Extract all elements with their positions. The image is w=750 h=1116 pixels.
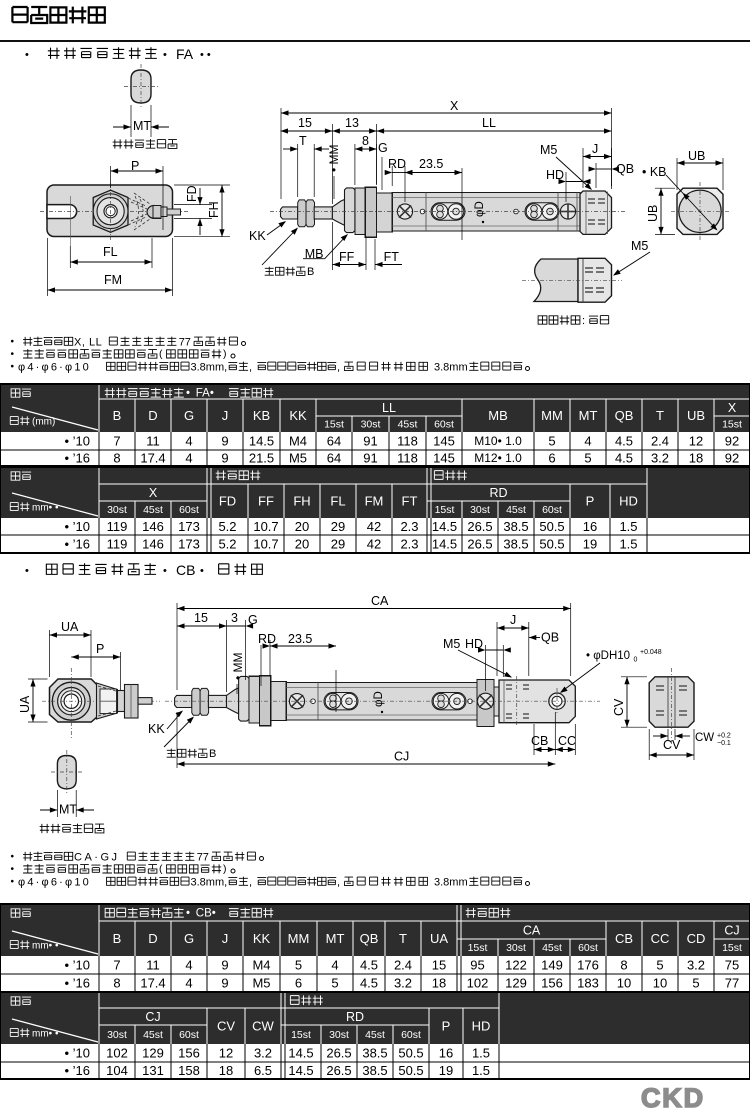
svg-text:42: 42 — [367, 537, 381, 552]
svg-text:15st: 15st — [722, 942, 742, 954]
svg-text:M5: M5 — [289, 451, 307, 466]
svg-text:15st: 15st — [722, 419, 742, 431]
svg-text:UB: UB — [646, 205, 660, 222]
svg-text:158: 158 — [178, 1063, 200, 1078]
svg-text:4: 4 — [185, 434, 192, 449]
svg-text:G: G — [378, 141, 388, 155]
svg-text:•: • — [11, 349, 15, 360]
svg-text:30st: 30st — [470, 504, 490, 516]
svg-text:2.3: 2.3 — [400, 537, 418, 552]
svg-text:φ4·φ6·φ10: φ4·φ6·φ10 — [18, 877, 91, 889]
svg-text:146: 146 — [142, 519, 164, 534]
svg-text:5: 5 — [548, 434, 555, 449]
svg-text:2.4: 2.4 — [651, 434, 669, 449]
svg-text:13: 13 — [345, 116, 359, 130]
svg-text:P: P — [586, 494, 595, 509]
svg-text:131: 131 — [142, 1063, 164, 1078]
svg-text:M5: M5 — [631, 239, 648, 253]
svg-text:1.5: 1.5 — [619, 537, 637, 552]
svg-text:15st: 15st — [291, 1029, 311, 1041]
svg-text:14.5: 14.5 — [249, 434, 274, 449]
svg-text:42: 42 — [367, 519, 381, 534]
svg-text:HD: HD — [465, 637, 483, 651]
svg-text:18: 18 — [432, 976, 446, 991]
svg-text:M5: M5 — [252, 976, 270, 991]
svg-text:60st: 60st — [401, 1029, 421, 1041]
svg-text:MT: MT — [59, 803, 77, 817]
svg-text:30st: 30st — [107, 1029, 127, 1041]
svg-text:26.5: 26.5 — [467, 537, 492, 552]
svg-text:77: 77 — [179, 337, 191, 349]
svg-text:•: • — [11, 864, 15, 875]
svg-text:60st: 60st — [179, 504, 199, 516]
svg-text:38.5: 38.5 — [503, 519, 528, 534]
svg-text:18: 18 — [219, 1063, 233, 1078]
svg-text:CA·GJ: CA·GJ — [74, 852, 120, 864]
svg-text:11: 11 — [146, 958, 160, 973]
svg-text:QB: QB — [616, 162, 634, 176]
svg-text:3: 3 — [231, 611, 238, 625]
svg-text:•: • — [25, 565, 29, 577]
svg-text:8: 8 — [620, 958, 627, 973]
svg-text:CC: CC — [651, 931, 670, 946]
svg-text:4: 4 — [584, 434, 591, 449]
svg-text:6: 6 — [295, 976, 302, 991]
svg-text:+0.2: +0.2 — [717, 733, 731, 740]
svg-text:14.5: 14.5 — [432, 519, 457, 534]
svg-text:23.5: 23.5 — [419, 157, 443, 171]
svg-text:50.5: 50.5 — [539, 537, 564, 552]
svg-text:• ’16: • ’16 — [64, 451, 90, 466]
svg-text:M5: M5 — [540, 143, 557, 157]
svg-text:15: 15 — [194, 611, 208, 625]
svg-text:15st: 15st — [435, 504, 455, 516]
svg-text:J: J — [222, 931, 229, 946]
svg-text:11: 11 — [146, 434, 160, 449]
svg-text:3.2: 3.2 — [394, 976, 412, 991]
svg-text:FH: FH — [207, 201, 221, 218]
svg-text:149: 149 — [541, 958, 563, 973]
svg-text:30st: 30st — [107, 504, 127, 516]
svg-text:19: 19 — [439, 1063, 453, 1078]
svg-text:12: 12 — [689, 434, 703, 449]
svg-text:KK: KK — [253, 931, 271, 946]
svg-text:RD: RD — [258, 632, 276, 646]
svg-text:UB: UB — [687, 408, 705, 423]
svg-text:QB: QB — [360, 931, 379, 946]
svg-text:MM: MM — [541, 408, 563, 423]
svg-text:LL: LL — [382, 401, 396, 415]
svg-text:45st: 45st — [143, 1029, 163, 1041]
svg-text:CB: CB — [615, 931, 633, 946]
svg-text:CB: CB — [531, 734, 548, 748]
svg-text:104: 104 — [106, 1063, 128, 1078]
svg-text:146: 146 — [142, 537, 164, 552]
svg-text:B: B — [307, 266, 314, 278]
svg-text:FM: FM — [104, 273, 122, 287]
svg-text:): ) — [223, 863, 227, 875]
svg-text:60st: 60st — [434, 419, 454, 431]
svg-text:•: • — [11, 877, 15, 888]
svg-text:G: G — [248, 613, 258, 627]
svg-text:3.2: 3.2 — [651, 451, 669, 466]
svg-text:CW: CW — [252, 1019, 274, 1034]
svg-text:1.5: 1.5 — [472, 1063, 490, 1078]
svg-text:X: X — [149, 486, 158, 500]
svg-text:UA: UA — [18, 695, 32, 713]
svg-text:MB: MB — [488, 408, 508, 423]
svg-text:18: 18 — [689, 451, 703, 466]
svg-text:CV: CV — [217, 1019, 235, 1034]
svg-text:5: 5 — [656, 958, 663, 973]
svg-text:3.8mm: 3.8mm — [434, 877, 468, 889]
svg-text:95: 95 — [470, 958, 484, 973]
svg-text:4: 4 — [185, 451, 192, 466]
svg-text:14.5: 14.5 — [288, 1046, 313, 1061]
svg-text:20: 20 — [295, 537, 309, 552]
svg-text:7: 7 — [113, 958, 120, 973]
svg-text:23.5: 23.5 — [288, 632, 312, 646]
svg-text:D: D — [148, 408, 157, 423]
svg-text:30st: 30st — [361, 419, 381, 431]
svg-text::: : — [582, 315, 585, 327]
svg-text:29: 29 — [331, 537, 345, 552]
svg-text:CB: CB — [176, 562, 195, 578]
svg-text:45st: 45st — [542, 942, 562, 954]
svg-text:M4: M4 — [289, 434, 307, 449]
svg-text:9: 9 — [221, 434, 228, 449]
svg-text:50.5: 50.5 — [539, 519, 564, 534]
svg-text:129: 129 — [142, 1046, 164, 1061]
svg-text:QB: QB — [541, 631, 559, 645]
svg-text:CJ: CJ — [394, 750, 409, 764]
svg-text:MT: MT — [133, 119, 151, 133]
svg-text:14.5: 14.5 — [288, 1063, 313, 1078]
svg-text:75: 75 — [725, 958, 739, 973]
svg-text:FD: FD — [185, 185, 199, 202]
svg-text:T: T — [656, 408, 664, 423]
svg-text:5.2: 5.2 — [218, 519, 236, 534]
svg-text:M10• 1.0: M10• 1.0 — [474, 434, 522, 448]
svg-text:• MM: • MM — [231, 652, 245, 680]
svg-text:5: 5 — [692, 976, 699, 991]
svg-text:118: 118 — [397, 434, 418, 449]
svg-text:45st: 45st — [398, 419, 418, 431]
svg-text:3.2: 3.2 — [687, 958, 705, 973]
svg-text:64: 64 — [327, 451, 341, 466]
svg-text:•: • — [11, 852, 15, 863]
svg-text:9: 9 — [221, 958, 228, 973]
svg-text:T: T — [399, 931, 407, 946]
svg-text:• ’16: • ’16 — [64, 537, 90, 552]
svg-text:B: B — [209, 748, 216, 760]
svg-text:118: 118 — [397, 451, 418, 466]
svg-text:J: J — [592, 142, 598, 156]
svg-text:CA: CA — [523, 923, 541, 937]
svg-text:(: ( — [159, 863, 163, 875]
svg-text:B: B — [113, 408, 122, 423]
svg-text:FD: FD — [219, 494, 236, 509]
svg-text:3.8mm,: 3.8mm, — [191, 362, 228, 374]
svg-text:mm• •: mm• • — [32, 1029, 59, 1040]
svg-text:FL: FL — [103, 245, 118, 259]
svg-text:• ’16: • ’16 — [64, 976, 90, 991]
svg-text:•: • — [11, 337, 15, 348]
svg-text:•: • — [11, 362, 15, 373]
svg-text:KK: KK — [148, 722, 165, 736]
svg-text:CJ: CJ — [724, 923, 739, 937]
svg-text:45st: 45st — [143, 504, 163, 516]
svg-text:2.3: 2.3 — [400, 519, 418, 534]
svg-text:26.5: 26.5 — [467, 519, 492, 534]
svg-text:156: 156 — [178, 1046, 200, 1061]
svg-text:CV: CV — [612, 698, 626, 716]
svg-text:91: 91 — [363, 434, 377, 449]
svg-text:X, LL: X, LL — [74, 337, 102, 349]
svg-text:FH: FH — [293, 494, 310, 509]
svg-text:38.5: 38.5 — [362, 1046, 387, 1061]
svg-text:FT: FT — [384, 250, 400, 264]
svg-text:8: 8 — [362, 134, 369, 148]
svg-text:173: 173 — [178, 519, 200, 534]
svg-text:• FA•: • FA• — [186, 388, 214, 400]
svg-text:• ’16: • ’16 — [64, 1063, 90, 1078]
svg-text:14.5: 14.5 — [432, 537, 457, 552]
svg-text:119: 119 — [107, 519, 128, 534]
svg-text:• KB: • KB — [642, 165, 667, 179]
svg-text:G: G — [184, 931, 194, 946]
svg-text:145: 145 — [433, 451, 455, 466]
svg-text:4.5: 4.5 — [360, 958, 378, 973]
svg-text:10.7: 10.7 — [253, 519, 278, 534]
svg-text:45st: 45st — [506, 504, 526, 516]
svg-text:50.5: 50.5 — [398, 1063, 423, 1078]
svg-text:MT: MT — [326, 931, 345, 946]
svg-text:145: 145 — [433, 434, 455, 449]
svg-text:CD: CD — [687, 931, 706, 946]
svg-text:21.5: 21.5 — [249, 451, 274, 466]
svg-text:17.4: 17.4 — [140, 451, 165, 466]
svg-text:mm• •: mm• • — [32, 941, 59, 952]
svg-text:77: 77 — [725, 976, 739, 991]
svg-text:29: 29 — [331, 519, 345, 534]
svg-text:6.5: 6.5 — [254, 1063, 272, 1078]
svg-text:J: J — [222, 408, 229, 423]
svg-text:HD: HD — [619, 494, 638, 509]
svg-text:60st: 60st — [179, 1029, 199, 1041]
svg-text:30st: 30st — [329, 1029, 349, 1041]
svg-text:RD: RD — [388, 157, 406, 171]
svg-text:M12• 1.0: M12• 1.0 — [474, 451, 522, 465]
svg-text:6: 6 — [548, 451, 555, 466]
svg-text:30st: 30st — [506, 942, 526, 954]
svg-text:4: 4 — [185, 958, 192, 973]
svg-text:92: 92 — [725, 451, 739, 466]
svg-text:26.5: 26.5 — [326, 1063, 351, 1078]
svg-text:4.5: 4.5 — [615, 451, 633, 466]
svg-text:LL: LL — [482, 116, 496, 130]
svg-text:CA: CA — [371, 594, 389, 608]
svg-text:FF: FF — [339, 250, 355, 264]
svg-text:mm• •: mm• • — [32, 503, 59, 514]
svg-text:7: 7 — [113, 434, 120, 449]
svg-text:FF: FF — [258, 494, 274, 509]
svg-text:183: 183 — [577, 976, 599, 991]
svg-text:P: P — [96, 642, 104, 656]
svg-text:0: 0 — [634, 657, 638, 664]
svg-text:,: , — [249, 362, 252, 374]
svg-text:KK: KK — [249, 229, 266, 243]
svg-text:φD: φD — [474, 201, 486, 217]
svg-text:RD: RD — [489, 486, 507, 500]
svg-text:): ) — [223, 348, 227, 360]
svg-text:G: G — [184, 408, 194, 423]
svg-text:MT: MT — [579, 408, 598, 423]
svg-text:3.2: 3.2 — [254, 1046, 272, 1061]
svg-text:12: 12 — [219, 1046, 233, 1061]
svg-text:38.5: 38.5 — [362, 1063, 387, 1078]
svg-text:4.5: 4.5 — [615, 434, 633, 449]
svg-text:−0.1: −0.1 — [717, 740, 731, 747]
svg-text:• ’10: • ’10 — [64, 958, 90, 973]
svg-text:MM: MM — [288, 931, 310, 946]
svg-text:FA: FA — [176, 46, 194, 62]
svg-text:φD: φD — [373, 691, 385, 707]
svg-text:122: 122 — [505, 958, 527, 973]
svg-text:• ’10: • ’10 — [64, 434, 90, 449]
svg-text:173: 173 — [178, 537, 200, 552]
svg-text:CJ: CJ — [145, 1010, 160, 1024]
svg-text:M5: M5 — [443, 637, 460, 651]
svg-text:10: 10 — [617, 976, 631, 991]
svg-text:4: 4 — [185, 976, 192, 991]
svg-text:KB: KB — [253, 408, 270, 423]
svg-text:176: 176 — [577, 958, 599, 973]
svg-text:FM: FM — [365, 494, 384, 509]
svg-text:CKD: CKD — [641, 1083, 705, 1111]
svg-text:20: 20 — [295, 519, 309, 534]
svg-text:4: 4 — [331, 958, 338, 973]
svg-text:φ4·φ6·φ10: φ4·φ6·φ10 — [18, 362, 91, 374]
svg-text:15: 15 — [298, 116, 312, 130]
svg-text:3.8mm,: 3.8mm, — [191, 877, 228, 889]
svg-text:UA: UA — [61, 620, 79, 634]
svg-text:1.5: 1.5 — [619, 519, 637, 534]
svg-text:5: 5 — [295, 958, 302, 973]
svg-text:10: 10 — [653, 976, 667, 991]
svg-text:9: 9 — [221, 976, 228, 991]
svg-text:(: ( — [159, 348, 163, 360]
svg-text:9: 9 — [221, 451, 228, 466]
svg-text:16: 16 — [439, 1046, 453, 1061]
svg-text:• φDH10: • φDH10 — [586, 650, 630, 662]
svg-text:1.5: 1.5 — [472, 1046, 490, 1061]
svg-text:102: 102 — [106, 1046, 128, 1061]
svg-text:16: 16 — [583, 519, 597, 534]
svg-text:5.2: 5.2 — [218, 537, 236, 552]
svg-text:8: 8 — [113, 451, 120, 466]
svg-text:5: 5 — [331, 976, 338, 991]
svg-text:RD: RD — [346, 1010, 364, 1024]
svg-text:CC: CC — [558, 734, 576, 748]
svg-text:38.5: 38.5 — [503, 537, 528, 552]
svg-text:•: • — [163, 49, 167, 61]
svg-text:15st: 15st — [324, 419, 344, 431]
svg-text:• CB•: • CB• — [186, 908, 216, 920]
svg-text:X: X — [450, 99, 459, 113]
svg-text:HD: HD — [472, 1019, 491, 1034]
svg-text:P: P — [442, 1019, 451, 1034]
svg-text:M4: M4 — [252, 958, 270, 973]
svg-text:8: 8 — [113, 976, 120, 991]
svg-text:• ’10: • ’10 — [64, 519, 90, 534]
svg-text:X: X — [728, 401, 737, 415]
svg-text:• •: • • — [200, 49, 211, 61]
svg-text:4.5: 4.5 — [360, 976, 378, 991]
svg-text:J: J — [510, 613, 516, 627]
svg-text:50.5: 50.5 — [398, 1046, 423, 1061]
svg-text:45st: 45st — [365, 1029, 385, 1041]
svg-text:91: 91 — [363, 451, 377, 466]
svg-text:UA: UA — [430, 931, 448, 946]
svg-text:UB: UB — [688, 149, 705, 163]
svg-text:77: 77 — [197, 852, 209, 864]
svg-text:15st: 15st — [468, 942, 488, 954]
svg-text:T: T — [299, 134, 307, 148]
svg-text:D: D — [148, 931, 157, 946]
svg-text:(mm): (mm) — [32, 417, 55, 428]
svg-text:5: 5 — [584, 451, 591, 466]
svg-text:15: 15 — [432, 958, 446, 973]
svg-text:+0.048: +0.048 — [640, 649, 662, 656]
svg-text:• ’10: • ’10 — [64, 1046, 90, 1061]
svg-text:,: , — [337, 877, 340, 889]
svg-text:HD: HD — [546, 168, 564, 182]
svg-text:102: 102 — [467, 976, 489, 991]
svg-text:26.5: 26.5 — [326, 1046, 351, 1061]
svg-text:FT: FT — [402, 494, 418, 509]
svg-text:129: 129 — [505, 976, 527, 991]
svg-text:FL: FL — [330, 494, 345, 509]
svg-text:KK: KK — [289, 408, 307, 423]
svg-text:CW: CW — [695, 732, 714, 744]
svg-text:B: B — [113, 931, 122, 946]
svg-text:,: , — [249, 877, 252, 889]
svg-text:60st: 60st — [578, 942, 598, 954]
svg-text:156: 156 — [541, 976, 563, 991]
svg-text:2.4: 2.4 — [394, 958, 412, 973]
svg-text:•: • — [200, 565, 204, 577]
svg-text:•: • — [25, 49, 29, 61]
svg-text:QB: QB — [615, 408, 634, 423]
svg-text:CV: CV — [663, 738, 681, 752]
svg-text:,: , — [337, 362, 340, 374]
svg-text:19: 19 — [583, 537, 597, 552]
svg-text:17.4: 17.4 — [140, 976, 165, 991]
svg-text:P: P — [131, 159, 139, 173]
svg-text:3.8mm: 3.8mm — [434, 362, 468, 374]
svg-text:•: • — [163, 565, 167, 577]
svg-text:119: 119 — [107, 537, 128, 552]
svg-text:64: 64 — [327, 434, 341, 449]
svg-text:10.7: 10.7 — [253, 537, 278, 552]
svg-text:• MM: • MM — [327, 144, 341, 172]
svg-text:60st: 60st — [542, 504, 562, 516]
svg-text:92: 92 — [725, 434, 739, 449]
